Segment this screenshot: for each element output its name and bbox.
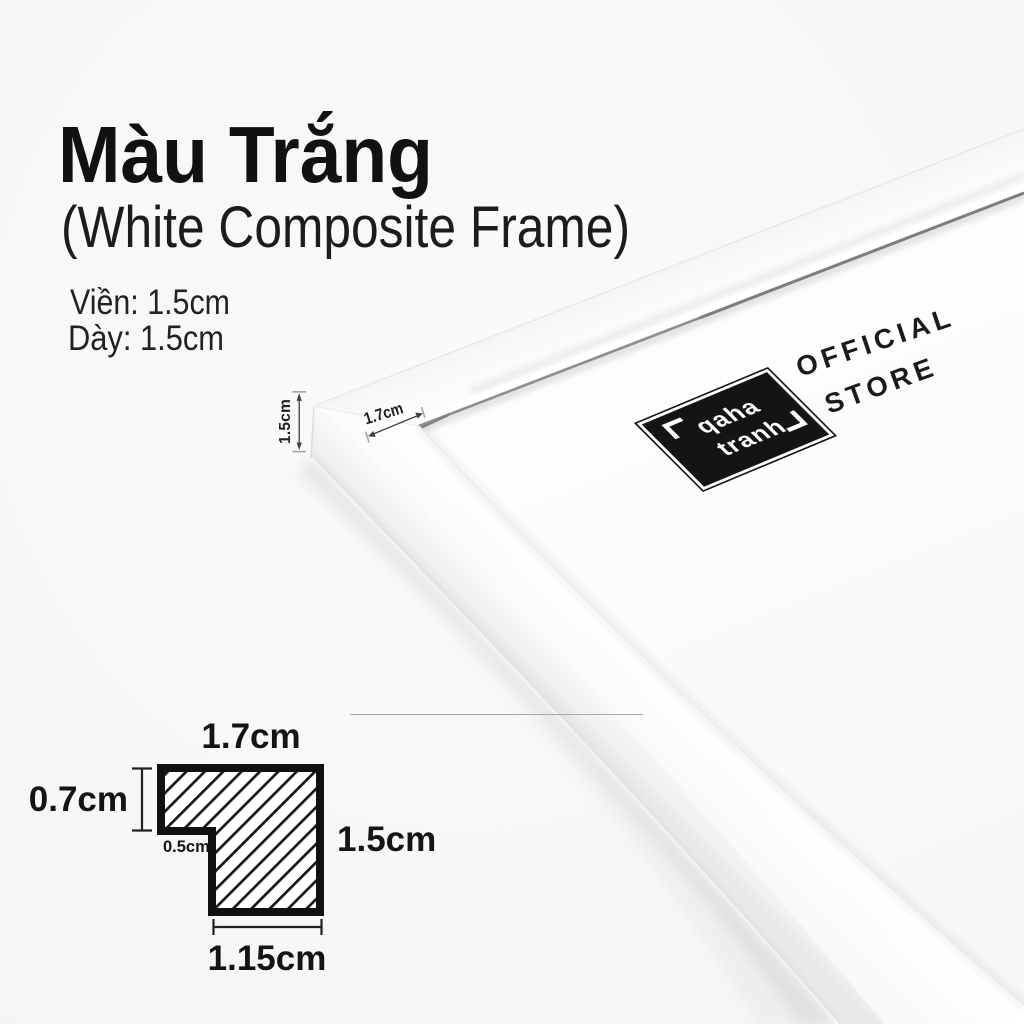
svg-text:Dày: 1.5cm: Dày: 1.5cm	[68, 318, 224, 358]
svg-text:0.5cm: 0.5cm	[163, 838, 210, 856]
svg-text:0.7cm: 0.7cm	[29, 780, 128, 819]
svg-text:1.5cm: 1.5cm	[277, 399, 294, 444]
svg-text:1.15cm: 1.15cm	[208, 939, 327, 978]
svg-text:1.7cm: 1.7cm	[201, 717, 300, 756]
svg-text:Màu Trắng: Màu Trắng	[58, 110, 433, 199]
svg-text:(White Composite Frame): (White Composite Frame)	[61, 195, 630, 260]
svg-text:Viền: 1.5cm: Viền: 1.5cm	[70, 282, 230, 322]
svg-text:1.5cm: 1.5cm	[337, 820, 436, 859]
